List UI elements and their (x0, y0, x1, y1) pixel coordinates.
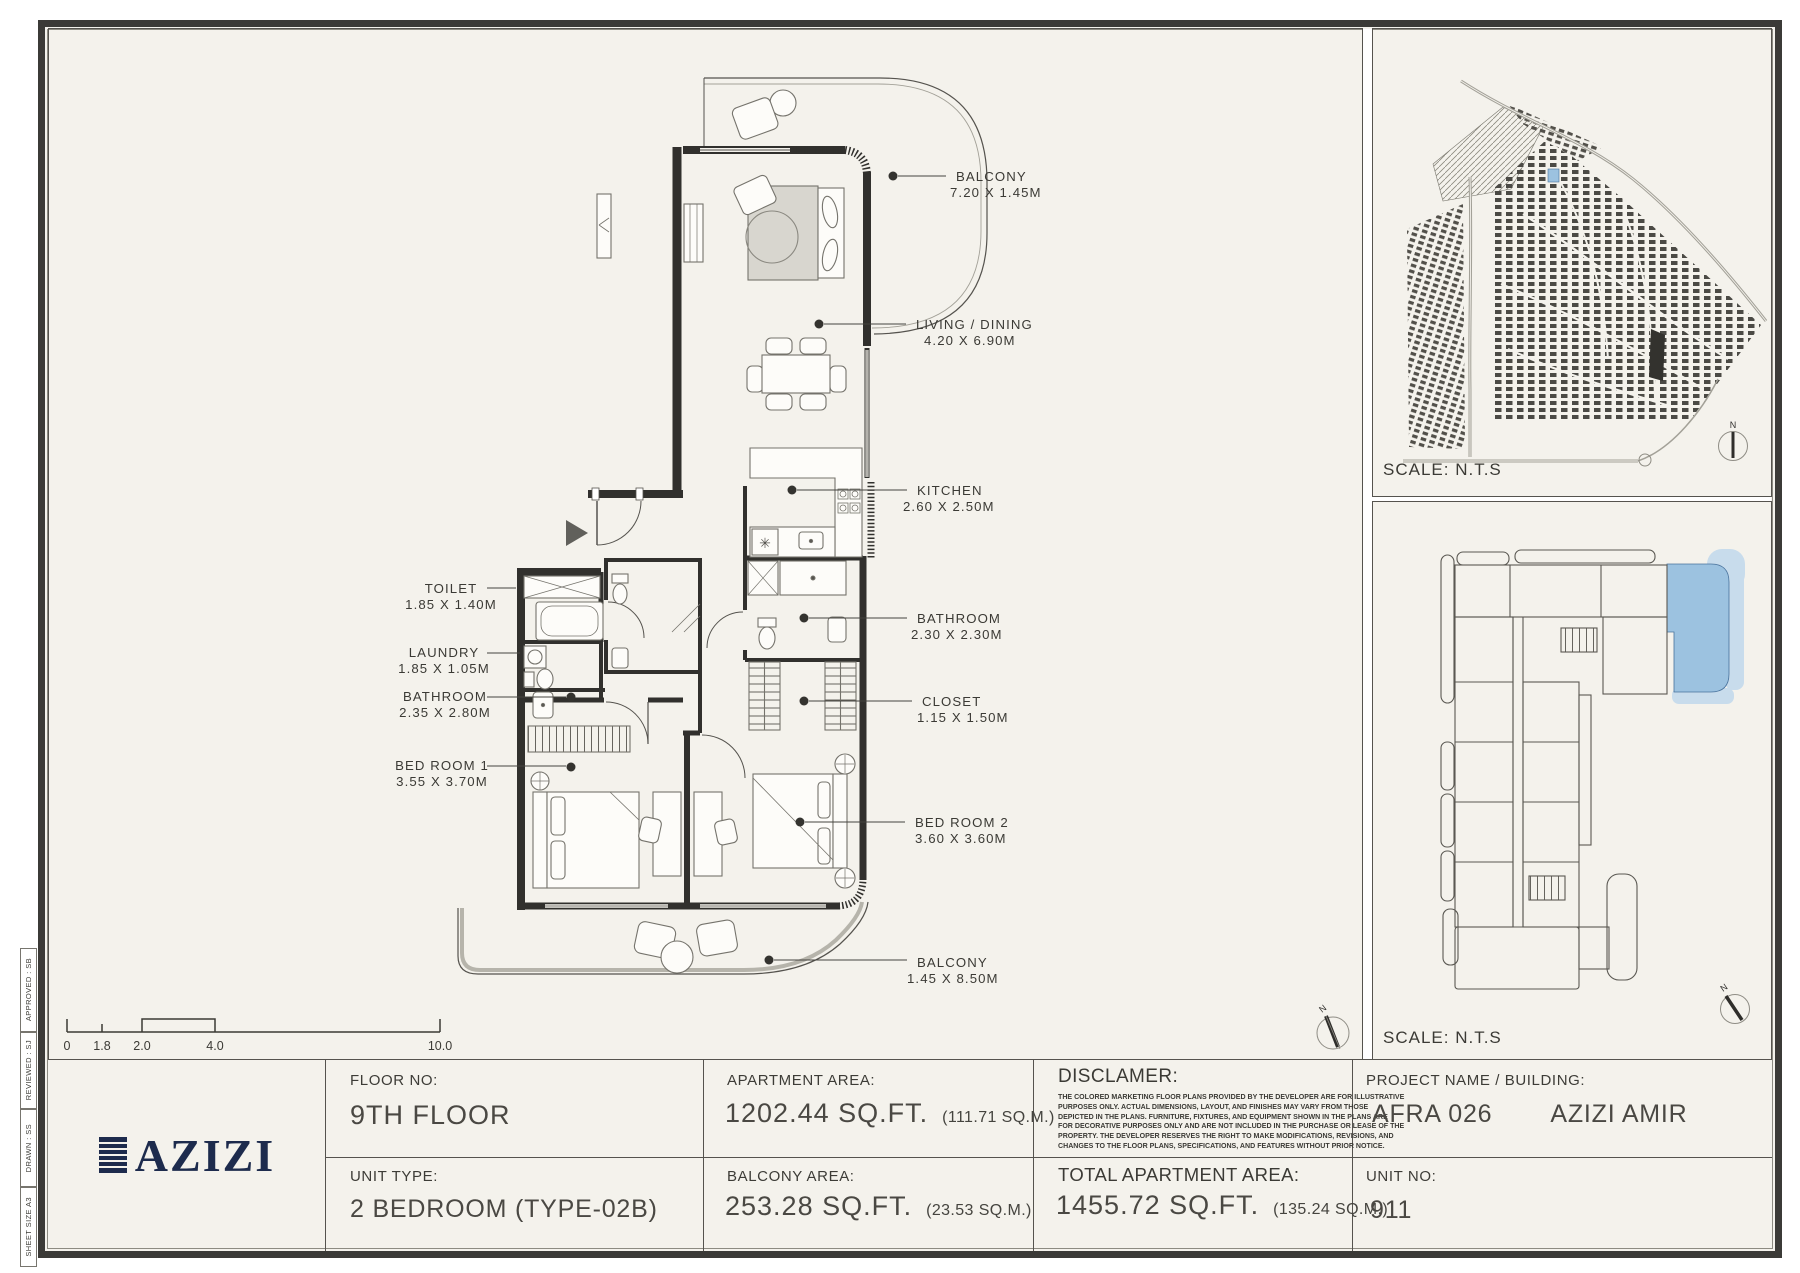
room-label-closet: CLOSET (922, 694, 981, 709)
room-dims-living-dining: 4.20 X 6.90M (924, 333, 1016, 348)
room-label-bedroom2: BED ROOM 2 (915, 815, 1009, 830)
bedroom2-furniture (694, 754, 855, 888)
wardrobe (684, 204, 703, 262)
shaft (597, 194, 611, 258)
sheet-size-text: SHEET SIZE A3 (24, 1197, 33, 1257)
dining-set (747, 338, 846, 410)
apartment-area-value: 1202.44 SQ.FT.(111.71 SQ.M.) (725, 1098, 1055, 1129)
unit-type-value: 2 BEDROOM (TYPE-02B) (350, 1195, 658, 1224)
north-compass-icon: N (1317, 1003, 1349, 1049)
disclaimer-line: THE COLORED MARKETING FLOOR PLANS PROVID… (1058, 1092, 1365, 1102)
room-dims-bedroom2: 3.60 X 3.60M (915, 831, 1007, 846)
scale-tick-1: 1.8 (93, 1039, 110, 1053)
meta-box-drawn: DRAWN : SS (20, 1109, 37, 1187)
room-dims-bathroom2: 2.30 X 2.30M (911, 627, 1003, 642)
closet-wardrobes (749, 662, 856, 730)
room-label-bedroom1: BED ROOM 1 (395, 758, 489, 773)
titleblock-divider-2 (703, 1059, 704, 1251)
balcony-area-value: 253.28 SQ.FT.(23.53 SQ.M.) (725, 1191, 1032, 1222)
room-dims-balcony-top: 7.20 X 1.45M (950, 185, 1042, 200)
site-map-highlight-plot (1548, 169, 1559, 182)
key-plan-building (1441, 550, 1667, 989)
key-plan: N (1373, 502, 1771, 1059)
room-label-kitchen: KITCHEN (917, 483, 983, 498)
balcony-area-label: BALCONY AREA: (727, 1168, 855, 1185)
key-plan-scale-label: SCALE: N.T.S (1383, 1028, 1502, 1048)
disclaimer-line: PROPERTY. THE DEVELOPER RESERVES THE RIG… (1058, 1131, 1365, 1141)
drawn-text: DRAWN : SS (24, 1124, 33, 1172)
azizi-logo: AZIZI (99, 1129, 275, 1182)
titleblock-divider-3 (1033, 1059, 1034, 1251)
unit-no-label: UNIT NO: (1366, 1168, 1436, 1185)
floor-no-label: FLOOR NO: (350, 1072, 438, 1089)
project-name-value: AFRA 026AZIZI AMIR (1372, 1100, 1688, 1129)
room-label-toilet: TOILET (425, 581, 478, 596)
reviewed-text: REVIEWED : SJ (24, 1040, 33, 1100)
apartment-area-sqm: (111.71 SQ.M.) (942, 1109, 1055, 1126)
site-map-landmark (1649, 329, 1665, 381)
building-name: AZIZI AMIR (1550, 1100, 1687, 1128)
floor-plan-sheet: ✳ (0, 0, 1800, 1273)
titleblock-divider-4 (1352, 1059, 1353, 1251)
bedroom1-furniture (528, 726, 681, 888)
site-map-compass-icon: N (1719, 420, 1748, 461)
disclaimer-line: CHANGES TO THE FLOOR PLANS, SPECIFICATIO… (1058, 1141, 1365, 1151)
room-dims-bedroom1: 3.55 X 3.70M (396, 774, 488, 789)
disclaimer-line: FOR DECORATIVE PURPOSES ONLY AND ARE NOT… (1058, 1121, 1365, 1131)
disclaimer-line: PURPOSES ONLY. ACTUAL DIMENSIONS, LAYOUT… (1058, 1102, 1365, 1112)
room-label-bathroom2: BATHROOM (917, 611, 1001, 626)
kitchen-counter: ✳ (750, 448, 862, 557)
meta-box-reviewed: REVIEWED : SJ (20, 1032, 37, 1109)
disclaimer-label: DISCLAMER: (1058, 1066, 1178, 1088)
disclaimer-line: DEPICTED IN THE PLANS. FURNITURE, FIXTUR… (1058, 1112, 1365, 1122)
entry-arrow (566, 520, 588, 546)
balcony-area-sqft: 253.28 SQ.FT. (725, 1191, 912, 1221)
room-dims-bathroom1: 2.35 X 2.80M (399, 705, 491, 720)
key-plan-compass-icon: N (1718, 982, 1749, 1024)
logo-cell: AZIZI (49, 1059, 325, 1251)
room-dims-laundry: 1.85 X 1.05M (398, 661, 490, 676)
svg-text:✳: ✳ (759, 535, 771, 551)
floor-no-value: 9TH FLOOR (350, 1100, 511, 1131)
total-area-sqft: 1455.72 SQ.FT. (1056, 1190, 1259, 1220)
compass-n-main: N (1317, 1003, 1328, 1015)
azizi-logo-text: AZIZI (135, 1129, 275, 1182)
approved-text: APPROVED : SB (24, 958, 33, 1021)
scale-bar: 0 1.8 2.0 4.0 10.0 (64, 1019, 453, 1053)
total-area-value: 1455.72 SQ.FT.(135.24 SQ.M.) (1056, 1190, 1388, 1221)
scale-tick-2: 2.0 (133, 1039, 150, 1053)
middle-bathroom-fixtures (612, 574, 700, 668)
room-label-living-dining: LIVING / DINING (916, 317, 1033, 332)
meta-box-sheet-size: SHEET SIZE A3 (20, 1187, 37, 1267)
compass-n-sitemap: N (1730, 420, 1737, 430)
key-plan-highlight (1667, 549, 1745, 704)
disclaimer-body: THE COLORED MARKETING FLOOR PLANS PROVID… (1058, 1092, 1365, 1151)
bathroom2-fixtures (748, 561, 846, 649)
scale-tick-4: 10.0 (428, 1039, 452, 1053)
compass-n-keyplan: N (1718, 982, 1729, 994)
titleblock-row-line (325, 1157, 1772, 1158)
bottom-balcony-furniture (633, 919, 738, 973)
balcony-area-sqm: (23.53 SQ.M.) (926, 1202, 1032, 1219)
site-map-scale-label: SCALE: N.T.S (1383, 460, 1502, 480)
scale-tick-0: 0 (64, 1039, 71, 1053)
room-label-balcony-top: BALCONY (956, 169, 1027, 184)
room-label-balcony-bottom: BALCONY (917, 955, 988, 970)
apartment-area-label: APARTMENT AREA: (727, 1072, 875, 1089)
floor-plan-drawing: ✳ (48, 28, 1362, 1059)
azizi-logo-bars-icon (99, 1137, 127, 1172)
apartment-area-sqft: 1202.44 SQ.FT. (725, 1098, 928, 1128)
room-label-bathroom1: BATHROOM (403, 689, 487, 704)
unit-no-value: 911 (1370, 1196, 1412, 1225)
room-dims-kitchen: 2.60 X 2.50M (903, 499, 995, 514)
room-dims-toilet: 1.85 X 1.40M (405, 597, 497, 612)
project-name-label: PROJECT NAME / BUILDING: (1366, 1072, 1585, 1089)
total-area-label: TOTAL APARTMENT AREA: (1058, 1164, 1299, 1186)
unit-type-label: UNIT TYPE: (350, 1168, 438, 1185)
scale-tick-3: 4.0 (206, 1039, 223, 1053)
room-label-laundry: LAUNDRY (409, 645, 479, 660)
titleblock-divider-1 (325, 1059, 326, 1251)
room-dims-balcony-bottom: 1.45 X 8.50M (907, 971, 999, 986)
site-map: N (1373, 29, 1771, 496)
room-dims-closet: 1.15 X 1.50M (917, 710, 1009, 725)
highlighted-unit-911 (1667, 564, 1729, 692)
project-name: AFRA 026 (1372, 1100, 1492, 1128)
meta-box-approved: APPROVED : SB (20, 948, 37, 1032)
